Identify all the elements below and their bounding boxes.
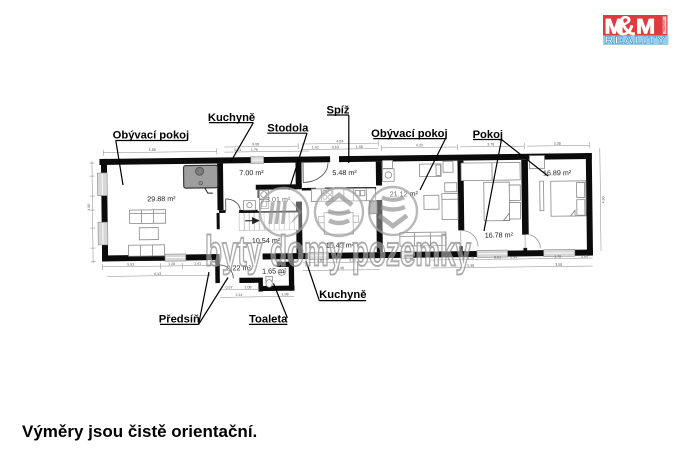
svg-text:3.78: 3.78 — [487, 142, 494, 146]
svg-text:5.88: 5.88 — [149, 148, 156, 152]
svg-text:5.93: 5.93 — [127, 263, 134, 267]
svg-text:Pokoj: Pokoj — [473, 129, 503, 141]
svg-text:Spíž: Spíž — [327, 104, 350, 116]
svg-text:5.48 m²: 5.48 m² — [332, 168, 357, 177]
svg-text:Stodola: Stodola — [267, 123, 309, 135]
svg-text:1.28: 1.28 — [168, 262, 175, 266]
svg-text:4.33: 4.33 — [416, 143, 423, 147]
svg-text:4.04: 4.04 — [336, 139, 343, 143]
svg-text:2.14: 2.14 — [236, 293, 243, 297]
svg-text:1.08: 1.08 — [244, 285, 251, 289]
svg-text:1.98: 1.98 — [356, 145, 363, 149]
svg-text:Obývací pokoj: Obývací pokoj — [113, 130, 189, 142]
svg-text:8.08: 8.08 — [252, 142, 259, 146]
svg-text:HOLDING: HOLDING — [662, 20, 666, 32]
svg-text:0.65: 0.65 — [581, 254, 588, 258]
svg-text:4.90: 4.90 — [87, 204, 91, 211]
svg-text:3.58: 3.58 — [555, 263, 562, 267]
svg-text:Obývací pokoj: Obývací pokoj — [371, 128, 447, 140]
svg-text:byty domy pozemky: byty domy pozemky — [205, 228, 471, 276]
svg-text:3.38: 3.38 — [554, 142, 561, 146]
svg-text:Kuchyně: Kuchyně — [319, 289, 366, 301]
svg-text:0.61: 0.61 — [494, 255, 501, 259]
svg-text:0.94: 0.94 — [510, 255, 517, 259]
svg-text:Výměry jsou čistě orientační.: Výměry jsou čistě orientační. — [22, 422, 257, 441]
svg-text:0.63: 0.63 — [332, 145, 339, 149]
svg-text:1.92: 1.92 — [312, 146, 319, 150]
svg-text:1.98: 1.98 — [282, 292, 289, 296]
svg-text:REALITY: REALITY — [605, 35, 667, 46]
svg-text:16.78 m²: 16.78 m² — [485, 230, 514, 239]
svg-text:29.88 m²: 29.88 m² — [147, 194, 176, 203]
svg-text:4.90: 4.90 — [601, 196, 605, 203]
svg-text:1.41: 1.41 — [194, 262, 201, 266]
svg-text:Kuchyně: Kuchyně — [208, 112, 255, 124]
svg-text:1.76: 1.76 — [251, 148, 258, 152]
svg-text:Předsíň: Předsíň — [159, 313, 200, 325]
svg-text:Toaleta: Toaleta — [249, 313, 288, 325]
svg-text:0.97: 0.97 — [225, 286, 232, 290]
svg-text:1.78: 1.78 — [554, 255, 561, 259]
svg-text:7.00 m²: 7.00 m² — [239, 168, 264, 177]
svg-text:6.93: 6.93 — [154, 272, 161, 276]
